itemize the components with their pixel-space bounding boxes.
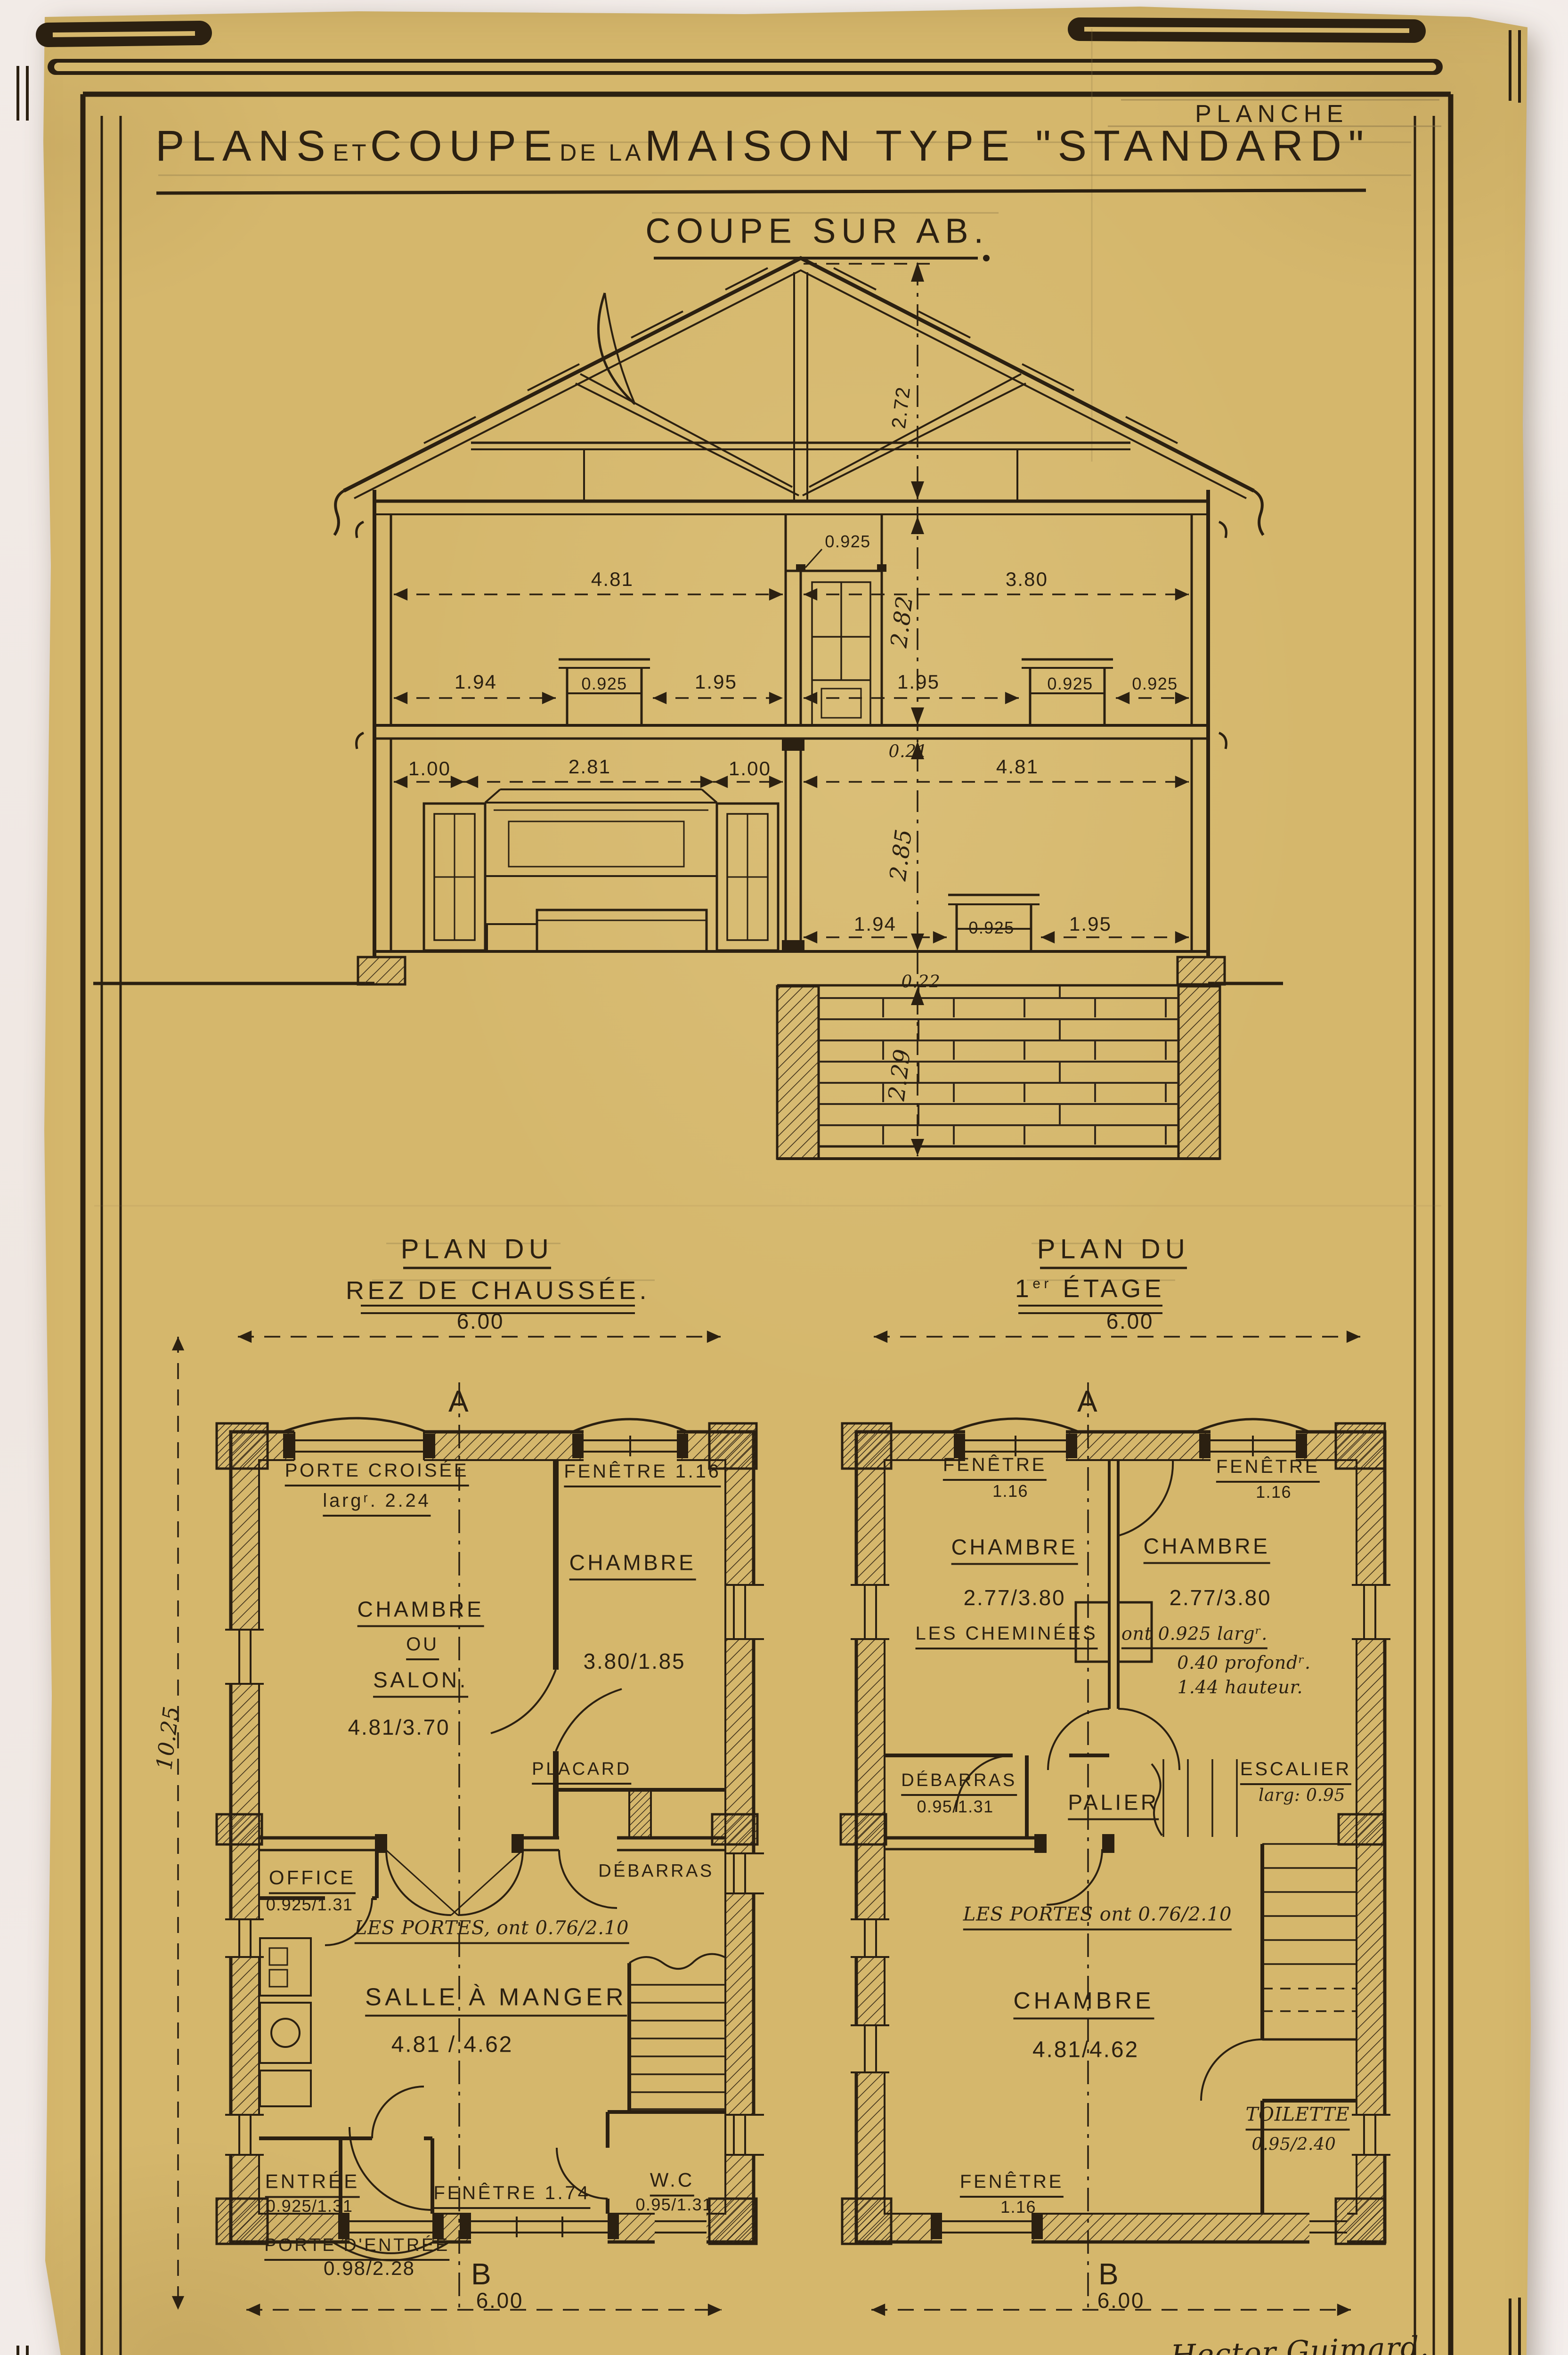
f1-cheminees-larg: ont 0.925 largʳ. xyxy=(1121,1624,1267,1649)
dim-gf-l3: 1.00 xyxy=(729,757,771,780)
section-drawing xyxy=(93,258,1283,1159)
title-word-dela: DE LA xyxy=(560,139,644,166)
f1-fenetre-b: FENÊTRE xyxy=(960,2171,1064,2198)
gf-fenetre-salle: FENÊTRE 1.74 xyxy=(433,2183,590,2209)
f1-cheminees: LES CHEMINÉES xyxy=(916,1623,1098,1649)
gf-wc-dim: 0.95/1.31 xyxy=(635,2195,712,2215)
f1-title-num: 1 xyxy=(1015,1275,1033,1303)
gf-chambre: CHAMBRE xyxy=(569,1550,696,1581)
f1-title-rest: ÉTAGE xyxy=(1063,1275,1165,1303)
f1-title-2: 1er ÉTAGE xyxy=(1015,1274,1165,1303)
f1-fenetre-tr-dim: 1.16 xyxy=(1256,1482,1292,1502)
dim-slab1: 0.21 xyxy=(888,742,927,762)
gf-marker-a: A xyxy=(448,1384,470,1419)
f1-fenetre-b-dim: 1.16 xyxy=(1000,2197,1036,2217)
dim-f1-win-l2: 0.925 xyxy=(581,674,627,694)
f1-fenetre-tr: FENÊTRE xyxy=(1216,1456,1320,1483)
gf-office: OFFICE xyxy=(269,1867,356,1894)
gf-plan-drawing xyxy=(217,1418,764,2260)
section-title: COUPE SUR AB. xyxy=(645,211,989,251)
title-word-coupe: COUPE xyxy=(370,122,559,171)
gf-fenetre-chambre: FENÊTRE 1.16 xyxy=(564,1461,721,1487)
f1-palier: PALIER xyxy=(1068,1790,1159,1820)
f1-cheminees-prof: 0.40 profondʳ. xyxy=(1177,1652,1311,1673)
f1-portes-note: LES PORTES ont 0.76/2.10 xyxy=(963,1904,1232,1931)
dim-f1-right: 3.80 xyxy=(1006,568,1048,591)
f1-escalier: ESCALIER xyxy=(1240,1759,1351,1785)
gf-porte-croisee: PORTE CROISÉE xyxy=(285,1460,469,1486)
f1-toilette: TOILETTE xyxy=(1246,2104,1350,2131)
f1-chambre-r-dim: 2.77/3.80 xyxy=(1170,1585,1272,1610)
gf-dim-top: 6.00 xyxy=(457,1308,504,1334)
f1-marker-a: A xyxy=(1077,1384,1099,1419)
f1-fenetre-tl-dim: 1.16 xyxy=(992,1481,1028,1501)
dim-slab2: 0.22 xyxy=(901,973,940,992)
sheet-title: PLANS ET COUPE DE LA MAISON TYPE "STANDA… xyxy=(155,122,1371,171)
f1-toilette-dim: 0.95/2.40 xyxy=(1252,2135,1336,2154)
dim-f1-win-l3: 1.95 xyxy=(695,671,737,693)
f1-escalier-dim: larg: 0.95 xyxy=(1259,1786,1345,1805)
dim-f1-win-l1: 1.94 xyxy=(455,671,497,693)
dim-f1-win-r1: 1.95 xyxy=(897,671,940,693)
f1-title-1: PLAN DU xyxy=(1037,1234,1190,1265)
scanned-architectural-drawing: { "colors": {"paper":"#d5b76c","ink":"#2… xyxy=(0,0,1568,2355)
f1-debarras: DÉBARRAS xyxy=(901,1770,1017,1796)
dim-f1-left: 4.81 xyxy=(591,568,634,591)
gf-salle: SALLE À MANGER xyxy=(365,1983,627,2017)
gf-entree-dim: 0.925/1.31 xyxy=(266,2196,353,2216)
dim-gf-l2: 2.81 xyxy=(569,755,611,778)
f1-chambre-l: CHAMBRE xyxy=(951,1535,1078,1565)
gf-marker-b: B xyxy=(471,2257,493,2291)
dim-gf-right: 4.81 xyxy=(996,755,1039,778)
gf-salon-dim: 4.81/3.70 xyxy=(348,1714,450,1740)
drawing-canvas xyxy=(0,0,1568,2355)
gf-chambre-dim: 3.80/1.85 xyxy=(584,1648,686,1674)
f1-dim-top: 6.00 xyxy=(1106,1308,1154,1334)
dim-attic-door: 0.925 xyxy=(825,532,870,552)
dim-f1-win-r2: 0.925 xyxy=(1047,674,1093,694)
dim-gf-win3: 1.95 xyxy=(1069,913,1112,935)
f1-cheminees-haut: 1.44 hauteur. xyxy=(1178,1677,1303,1697)
dim-gf-win1: 1.94 xyxy=(854,913,896,935)
dim-gf-win2: 0.925 xyxy=(968,918,1014,938)
gf-portes-note: LES PORTES, ont 0.76/2.10 xyxy=(355,1917,629,1944)
dim-f1-win-r3: 0.925 xyxy=(1132,674,1178,694)
gf-dim-bottom: 6.00 xyxy=(476,2288,524,2313)
f1-fenetre-tl: FENÊTRE xyxy=(943,1454,1047,1481)
f1-marker-b: B xyxy=(1098,2257,1120,2291)
gf-salon-3: SALON. xyxy=(373,1667,468,1698)
gf-office-dim: 0.925/1.31 xyxy=(266,1895,353,1915)
gf-salon-2: OU xyxy=(406,1634,439,1660)
f1-chambre-b: CHAMBRE xyxy=(1013,1987,1154,2020)
gf-title-1: PLAN DU xyxy=(401,1234,553,1265)
gf-entree: ENTRÉE xyxy=(265,2170,360,2198)
gf-salon-1: CHAMBRE xyxy=(357,1597,484,1627)
f1-chambre-l-dim: 2.77/3.80 xyxy=(964,1585,1066,1610)
gf-porte-entree-dim: 0.98/2.28 xyxy=(324,2257,415,2280)
gf-porte-croisee-dim: largʳ. 2.24 xyxy=(323,1490,431,1517)
f1-title-sup: er xyxy=(1032,1276,1052,1291)
f1-chambre-b-dim: 4.81/4.62 xyxy=(1032,2037,1139,2063)
f1-debarras-dim: 0.95/1.31 xyxy=(917,1797,993,1817)
gf-wc: W.C xyxy=(650,2169,694,2197)
title-word-maison: MAISON TYPE "STANDARD" xyxy=(645,122,1371,171)
gf-salle-dim: 4.81 / 4.62 xyxy=(391,2032,513,2058)
title-word-et: ET xyxy=(333,139,370,166)
f1-chambre-r: CHAMBRE xyxy=(1144,1534,1270,1564)
gf-placard: PLACARD xyxy=(532,1759,631,1785)
title-word-plans: PLANS xyxy=(155,122,332,171)
gf-debarras: DÉBARRAS xyxy=(598,1861,714,1882)
f1-dim-bottom: 6.00 xyxy=(1097,2288,1145,2313)
dim-gf-l1: 1.00 xyxy=(408,757,451,780)
gf-title-2: REZ DE CHAUSSÉE. xyxy=(346,1276,650,1305)
